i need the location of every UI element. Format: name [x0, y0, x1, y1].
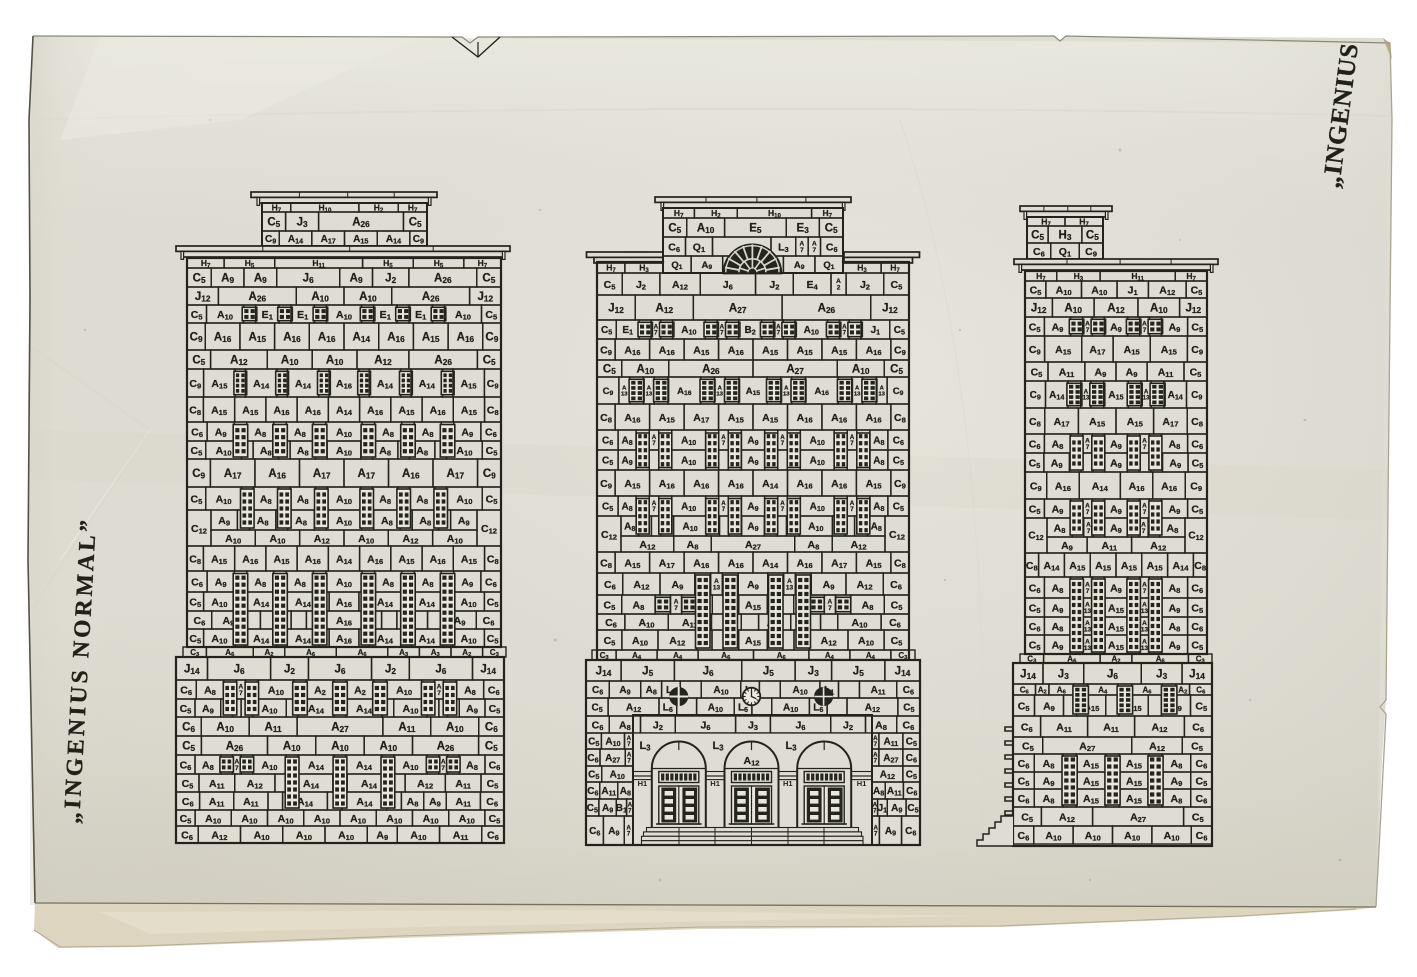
svg-text:A12: A12 [374, 355, 392, 368]
svg-text:C5: C5 [588, 770, 599, 781]
svg-text:L6: L6 [663, 703, 673, 714]
svg-text:C9: C9 [413, 234, 424, 245]
svg-text:A17: A17 [321, 234, 336, 245]
svg-text:C6: C6 [592, 685, 603, 696]
svg-text:A9: A9 [891, 803, 902, 814]
svg-text:A26: A26 [422, 291, 440, 304]
svg-text:A9: A9 [608, 826, 619, 837]
svg-text:A17: A17 [358, 468, 376, 481]
svg-text:J14: J14 [184, 664, 200, 677]
svg-text:A10: A10 [810, 436, 825, 447]
svg-text:C5: C5 [588, 737, 599, 748]
svg-text:A16: A16 [283, 332, 301, 345]
svg-text:7: 7 [1086, 444, 1090, 451]
svg-text:13: 13 [878, 391, 885, 397]
svg-text:A14: A14 [1049, 390, 1064, 401]
svg-text:C12: C12 [1028, 531, 1043, 542]
svg-text:13: 13 [1084, 627, 1092, 634]
svg-text:J3: J3 [297, 217, 308, 230]
svg-text:7: 7 [777, 330, 781, 337]
svg-text:7: 7 [1086, 327, 1090, 334]
svg-text:C5: C5 [603, 364, 616, 377]
svg-text:C5: C5 [903, 703, 914, 714]
svg-text:A16: A16 [318, 332, 336, 345]
svg-text:A12: A12 [230, 355, 248, 368]
svg-text:A8: A8 [646, 685, 657, 696]
svg-text:A26: A26 [702, 364, 720, 377]
svg-text:C5: C5 [601, 325, 612, 336]
svg-text:7: 7 [873, 808, 877, 815]
svg-text:J12: J12 [195, 291, 211, 304]
svg-text:A10: A10 [681, 325, 696, 336]
svg-text:7: 7 [441, 765, 445, 772]
svg-text:A27: A27 [729, 303, 747, 316]
svg-text:7: 7 [1086, 509, 1090, 516]
svg-text:A10: A10 [1064, 303, 1082, 316]
svg-text:7: 7 [674, 605, 678, 612]
svg-text:7: 7 [722, 506, 726, 513]
svg-text:J1: J1 [871, 325, 881, 336]
svg-text:A14: A14 [288, 234, 303, 245]
svg-text:A14: A14 [1168, 390, 1183, 401]
svg-text:2: 2 [837, 285, 841, 292]
svg-text:C6: C6 [587, 753, 598, 764]
svg-text:A10: A10 [681, 502, 696, 513]
svg-text:J14: J14 [895, 666, 911, 679]
svg-text:A10: A10 [804, 325, 819, 336]
svg-text:A12: A12 [880, 770, 895, 781]
svg-text:A27: A27 [883, 753, 898, 764]
svg-text:C5: C5 [193, 273, 206, 286]
svg-text:A10: A10 [810, 502, 825, 513]
svg-text:C5: C5 [893, 502, 904, 513]
svg-text:7: 7 [437, 690, 441, 697]
svg-text:A10: A10 [810, 456, 825, 467]
svg-text:A10: A10 [1150, 303, 1168, 316]
svg-text:A8: A8 [621, 502, 632, 513]
svg-text:A9: A9 [747, 522, 758, 533]
svg-text:C5: C5 [182, 741, 195, 754]
svg-text:J12: J12 [608, 303, 624, 316]
svg-text:13: 13 [783, 391, 790, 397]
svg-text:13: 13 [1084, 645, 1092, 652]
svg-text:7: 7 [781, 440, 785, 447]
svg-text:E1: E1 [622, 325, 633, 336]
svg-text:J12: J12 [882, 303, 898, 316]
svg-text:H1: H1 [710, 779, 720, 788]
svg-text:H1: H1 [783, 779, 793, 788]
svg-text:A10: A10 [283, 741, 301, 754]
svg-text:A10: A10 [808, 522, 823, 533]
svg-text:13: 13 [1143, 395, 1150, 402]
svg-text:J2: J2 [284, 664, 295, 677]
svg-text:J6: J6 [703, 666, 714, 679]
svg-text:7: 7 [812, 247, 816, 254]
svg-text:J1: J1 [878, 803, 888, 814]
svg-text:A9: A9 [619, 685, 630, 696]
svg-text:A8: A8 [873, 456, 884, 467]
svg-text:A9: A9 [350, 273, 363, 286]
svg-text:13: 13 [1141, 627, 1149, 634]
svg-text:7: 7 [1086, 588, 1090, 595]
svg-text:7: 7 [850, 506, 854, 513]
svg-text:A15: A15 [353, 234, 368, 245]
svg-text:C5: C5 [893, 456, 904, 467]
svg-text:7: 7 [800, 247, 804, 254]
svg-text:A11: A11 [883, 737, 898, 748]
svg-text:B2: B2 [744, 325, 755, 336]
svg-text:J2: J2 [385, 273, 396, 286]
svg-text:A8: A8 [620, 786, 631, 797]
svg-text:13: 13 [854, 391, 861, 397]
svg-text:J12: J12 [1185, 303, 1201, 316]
svg-text:A10: A10 [311, 291, 329, 304]
svg-text:A9: A9 [254, 273, 267, 286]
svg-text:A12: A12 [1107, 303, 1125, 316]
svg-text:A16: A16 [387, 332, 405, 345]
svg-text:7: 7 [1143, 327, 1147, 334]
svg-text:A9: A9 [885, 826, 896, 837]
svg-text:7: 7 [828, 605, 832, 612]
svg-text:C5: C5 [602, 502, 613, 513]
svg-text:A10: A10 [681, 436, 696, 447]
svg-text:A27: A27 [331, 722, 349, 735]
svg-text:13: 13 [1082, 395, 1089, 402]
svg-text:A15: A15 [1108, 390, 1123, 401]
svg-text:A10: A10 [446, 722, 464, 735]
svg-text:J3: J3 [808, 666, 819, 679]
svg-text:C9: C9 [1191, 390, 1202, 401]
svg-text:C5: C5 [1086, 230, 1099, 243]
svg-text:C9: C9 [1030, 390, 1041, 401]
svg-text:C5: C5 [591, 703, 602, 714]
svg-text:J3: J3 [1156, 669, 1167, 682]
svg-text:J6: J6 [1107, 669, 1118, 682]
svg-text:13: 13 [1084, 608, 1092, 615]
svg-text:A17: A17 [313, 468, 331, 481]
svg-text:13: 13 [1141, 645, 1149, 652]
svg-text:7: 7 [235, 765, 239, 772]
svg-text:C5: C5 [906, 737, 917, 748]
svg-text:7: 7 [843, 330, 847, 337]
svg-text:C6: C6 [182, 722, 195, 735]
svg-text:A26: A26 [818, 303, 836, 316]
svg-text:A10: A10 [708, 703, 723, 714]
svg-text:7: 7 [627, 741, 631, 748]
svg-text:C6: C6 [903, 685, 914, 696]
svg-text:A17: A17 [447, 468, 465, 481]
svg-text:C9: C9 [190, 332, 203, 345]
svg-text:A12: A12 [865, 703, 880, 714]
svg-text:A10: A10 [682, 522, 697, 533]
svg-text:7: 7 [239, 690, 243, 697]
svg-text:J5: J5 [763, 666, 774, 679]
svg-text:7: 7 [654, 330, 658, 337]
svg-text:A16: A16 [214, 332, 232, 345]
svg-text:7: 7 [652, 506, 656, 513]
svg-text:A10: A10 [359, 291, 377, 304]
svg-text:A11: A11 [265, 722, 282, 735]
svg-text:7: 7 [1143, 509, 1147, 516]
svg-text:A9: A9 [621, 456, 632, 467]
svg-text:7: 7 [874, 758, 878, 765]
svg-text:7: 7 [1143, 444, 1147, 451]
svg-text:J6: J6 [303, 273, 314, 286]
svg-text:A15: A15 [422, 332, 440, 345]
svg-text:A11: A11 [871, 685, 886, 696]
svg-text:13: 13 [646, 391, 653, 397]
svg-text:7: 7 [874, 741, 878, 748]
svg-text:13: 13 [621, 391, 628, 397]
svg-text:C5: C5 [483, 355, 496, 368]
svg-text:A10: A10 [326, 355, 344, 368]
svg-text:J12: J12 [477, 291, 493, 304]
svg-text:A9: A9 [747, 456, 758, 467]
svg-text:C6: C6 [602, 436, 613, 447]
svg-text:A10: A10 [331, 741, 349, 754]
svg-text:C5: C5 [192, 355, 205, 368]
svg-text:C5: C5 [668, 223, 681, 236]
svg-text:J6: J6 [334, 664, 345, 677]
svg-text:J6: J6 [234, 664, 245, 677]
svg-text:C6: C6 [485, 722, 498, 735]
svg-text:A9: A9 [602, 803, 613, 814]
svg-text:E5: E5 [749, 223, 762, 236]
svg-text:C5: C5 [1031, 230, 1044, 243]
svg-text:A10: A10 [380, 741, 398, 754]
svg-text:7: 7 [722, 440, 726, 447]
svg-text:A16: A16 [268, 468, 286, 481]
svg-text:A26: A26 [249, 291, 267, 304]
svg-text:C6: C6 [589, 826, 600, 837]
svg-text:7: 7 [1142, 528, 1146, 535]
svg-text:C6: C6 [906, 786, 917, 797]
svg-text:H1: H1 [857, 779, 867, 788]
svg-text:A12: A12 [656, 303, 674, 316]
svg-text:H3: H3 [1059, 230, 1072, 243]
svg-text:J3: J3 [1058, 669, 1069, 682]
svg-text:J6: J6 [435, 664, 446, 677]
svg-text:C5: C5 [906, 770, 917, 781]
svg-text:C9: C9 [265, 234, 276, 245]
svg-text:C5: C5 [907, 803, 918, 814]
svg-text:C5: C5 [890, 364, 903, 377]
svg-text:A12: A12 [626, 703, 641, 714]
svg-text:A8: A8 [871, 522, 882, 533]
svg-text:7: 7 [1143, 588, 1147, 595]
svg-text:C6: C6 [905, 826, 916, 837]
svg-text:A8: A8 [873, 786, 884, 797]
svg-text:7: 7 [628, 808, 632, 815]
svg-text:7: 7 [652, 440, 656, 447]
svg-text:A9: A9 [747, 502, 758, 513]
svg-text:7: 7 [627, 831, 631, 838]
svg-text:A10: A10 [792, 685, 807, 696]
svg-text:C12: C12 [1188, 531, 1203, 542]
svg-text:A10: A10 [783, 703, 798, 714]
svg-text:A14: A14 [353, 332, 371, 345]
svg-text:A10: A10 [681, 456, 696, 467]
svg-text:J14: J14 [596, 666, 612, 679]
svg-text:A10: A10 [852, 364, 870, 377]
svg-text:E3: E3 [797, 223, 810, 236]
svg-text:C5: C5 [602, 456, 613, 467]
svg-text:C9: C9 [192, 468, 205, 481]
svg-text:7: 7 [627, 758, 631, 765]
svg-text:J5: J5 [642, 666, 653, 679]
svg-text:J14: J14 [1020, 669, 1036, 682]
svg-text:7: 7 [781, 506, 785, 513]
svg-text:A14: A14 [386, 234, 401, 245]
svg-text:A8: A8 [621, 436, 632, 447]
svg-text:J14: J14 [480, 664, 496, 677]
svg-text:H1: H1 [638, 779, 648, 788]
svg-text:C9: C9 [483, 468, 496, 481]
svg-text:A10: A10 [697, 223, 715, 236]
svg-text:C9: C9 [485, 332, 498, 345]
svg-text:C5: C5 [482, 273, 495, 286]
svg-text:A9: A9 [747, 436, 758, 447]
svg-text:C5: C5 [485, 741, 498, 754]
svg-text:A8: A8 [873, 502, 884, 513]
svg-text:A27: A27 [605, 753, 620, 764]
svg-text:C5: C5 [894, 325, 905, 336]
svg-text:A16: A16 [402, 468, 420, 481]
svg-text:A10: A10 [216, 722, 234, 735]
svg-text:A26: A26 [434, 273, 452, 286]
svg-text:A15: A15 [249, 332, 267, 345]
svg-text:A8: A8 [873, 436, 884, 447]
svg-text:7: 7 [850, 440, 854, 447]
svg-text:C5: C5 [587, 803, 598, 814]
svg-text:J5: J5 [853, 666, 864, 679]
svg-text:7: 7 [874, 831, 878, 838]
svg-text:B1: B1 [616, 803, 627, 814]
svg-text:J12: J12 [1031, 303, 1047, 316]
svg-text:C5: C5 [825, 223, 838, 236]
svg-text:A11: A11 [601, 786, 616, 797]
svg-text:C5: C5 [267, 217, 280, 230]
svg-text:13: 13 [1141, 608, 1149, 615]
svg-text:A17: A17 [224, 468, 242, 481]
svg-text:A8: A8 [624, 522, 635, 533]
svg-text:C6: C6 [906, 753, 917, 764]
svg-text:C6: C6 [587, 786, 598, 797]
svg-text:A26: A26 [437, 741, 455, 754]
svg-text:A26: A26 [434, 355, 452, 368]
svg-text:A26: A26 [352, 217, 370, 230]
svg-text:A10: A10 [713, 685, 728, 696]
svg-text:A16: A16 [457, 332, 475, 345]
svg-text:C6: C6 [893, 436, 904, 447]
svg-text:A10: A10 [281, 355, 299, 368]
svg-text:A27: A27 [786, 364, 804, 377]
svg-text:A11: A11 [398, 722, 415, 735]
svg-text:7: 7 [720, 330, 724, 337]
svg-text:A11: A11 [887, 786, 902, 797]
svg-text:13: 13 [716, 391, 723, 397]
svg-text:7: 7 [1087, 528, 1091, 535]
svg-text:C5: C5 [409, 217, 422, 230]
svg-text:J14: J14 [1189, 669, 1205, 682]
svg-text:A26: A26 [226, 741, 244, 754]
svg-text:A10: A10 [637, 364, 655, 377]
svg-text:A9: A9 [221, 273, 234, 286]
svg-text:A10: A10 [610, 770, 625, 781]
svg-text:13: 13 [713, 585, 721, 592]
svg-text:J2: J2 [385, 664, 396, 677]
svg-text:A10: A10 [605, 737, 620, 748]
svg-text:13: 13 [786, 585, 794, 592]
